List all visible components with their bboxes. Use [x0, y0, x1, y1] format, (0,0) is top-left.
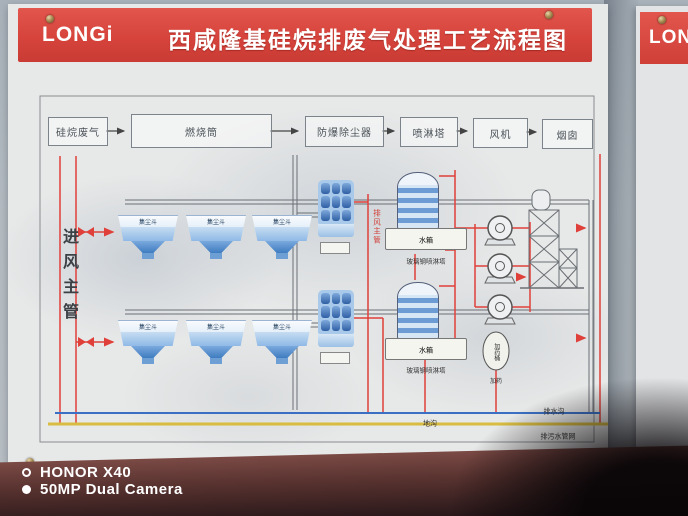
photo-of-poster: LONGi LONGi 西咸隆基硅烷排废气处理工艺流程图: [0, 0, 688, 516]
scrubber-tank-label: 水箱: [419, 234, 433, 245]
hopper-icon: 集尘斗: [252, 215, 312, 259]
scrubber-caption-text: 玻璃钢喷淋塔: [407, 365, 446, 375]
hopper-label: 集尘斗: [273, 322, 291, 331]
dust-bin-icon: [320, 242, 350, 254]
dust-bin-icon: [320, 352, 350, 364]
flow-box-silane-gas: 硅烷废气: [48, 117, 108, 146]
corner-shadow: [448, 376, 688, 516]
dust-collector-icon: [318, 290, 354, 347]
flow-box-burner: 燃烧筒: [131, 114, 272, 148]
valve-icons: [78, 227, 94, 347]
hopper-label: 集尘斗: [207, 322, 225, 331]
hopper-icon: 集尘斗: [118, 215, 178, 259]
trench-label: 地沟: [414, 414, 446, 432]
fan-icons: [485, 216, 515, 324]
spray-tower-icon: [397, 282, 439, 340]
hopper-label: 集尘斗: [139, 322, 157, 331]
flow-box-chimney: 烟囱: [542, 119, 593, 149]
flow-box-dust-collector: 防爆除尘器: [305, 116, 384, 147]
dot-icon: [22, 485, 31, 494]
camera-watermark: HONOR X40 50MP Dual Camera: [22, 464, 183, 498]
scrubber-tank: 水箱: [385, 338, 467, 360]
mounting-bolt: [545, 11, 553, 19]
hopper-icon: 集尘斗: [118, 320, 178, 364]
mounting-bolt: [658, 16, 666, 24]
flow-box-fan: 风机: [473, 118, 528, 148]
hopper-icon: 集尘斗: [186, 215, 246, 259]
spray-tower-icon: [397, 172, 439, 230]
ring-icon: [22, 468, 31, 477]
scrubber-tank-label: 水箱: [419, 344, 433, 355]
dust-collector-icon: [318, 180, 354, 237]
scrubber-caption-text: 玻璃钢喷淋塔: [407, 256, 446, 266]
intake-main-label: 进风主管: [56, 228, 80, 354]
hopper-label: 集尘斗: [207, 217, 225, 226]
hopper-label: 集尘斗: [139, 217, 157, 226]
flow-box-spray-tower: 喷淋塔: [400, 117, 458, 147]
duct-lines: [125, 155, 593, 412]
scrubber-tank: 水箱: [385, 228, 467, 250]
exhaust-riser-label: 排风主管: [370, 209, 381, 253]
watermark-camera: 50MP Dual Camera: [40, 481, 183, 498]
watermark-device: HONOR X40: [40, 464, 131, 481]
hopper-icon: 集尘斗: [252, 320, 312, 364]
mounting-bolt: [46, 15, 54, 23]
trench-text: 地沟: [423, 417, 437, 428]
hopper-icon: 集尘斗: [186, 320, 246, 364]
scrubber-caption: 玻璃钢喷淋塔: [381, 252, 471, 270]
hopper-label: 集尘斗: [273, 217, 291, 226]
dosing-tank-label: 加药桶: [488, 342, 504, 362]
neighbor-longi-logo: LONGi: [640, 27, 688, 49]
